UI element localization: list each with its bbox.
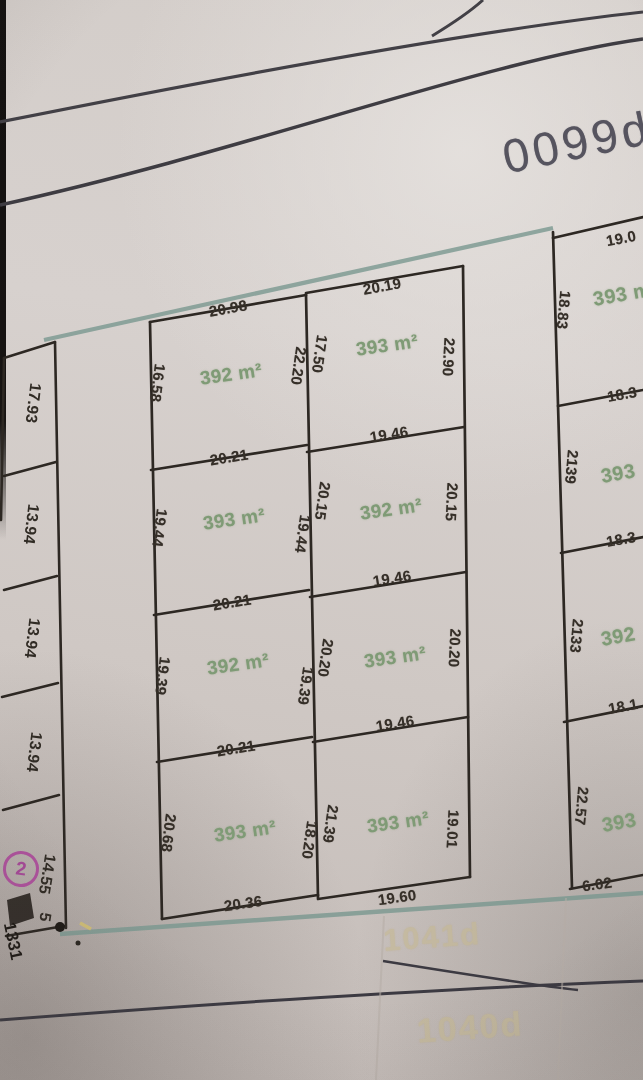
parcel-marker-number: 2 <box>14 857 28 880</box>
dim-label-right: 19.01 <box>445 809 462 848</box>
plan-scene: 0099d 17.93 13.94 13.94 13.94 14.55 5 13… <box>0 0 643 1080</box>
dim-label-right: 22.90 <box>441 337 458 376</box>
strip-dim-label: 17.93 <box>23 382 44 424</box>
strip-dim-label: 13.94 <box>21 503 42 545</box>
cadastral-plan-photo: 0099d 17.93 13.94 13.94 13.94 14.55 5 13… <box>0 0 643 1080</box>
strip-dim-label: 13.94 <box>24 731 45 773</box>
watermark-parcel-id: 1041d <box>382 918 482 956</box>
watermark-parcel-id: 1040d <box>416 1006 525 1047</box>
dim-label-left: 2139 <box>563 449 581 484</box>
strip-dim-label: 13.94 <box>22 617 43 659</box>
dim-label-left: 22.57 <box>573 786 591 826</box>
dim-label-left: 18.83 <box>555 290 573 330</box>
dim-label-left: 2133 <box>568 618 586 653</box>
dim-label-right: 20.20 <box>447 628 464 667</box>
dim-label-right: 20.15 <box>444 482 461 521</box>
dim-label-bottom: 6.02 <box>581 874 613 893</box>
